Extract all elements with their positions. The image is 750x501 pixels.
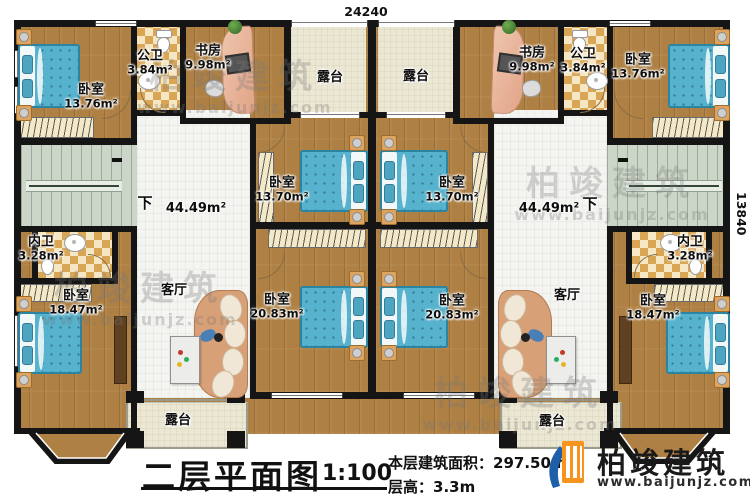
nightstand xyxy=(16,296,32,312)
plan-scale: 1:100 xyxy=(322,461,392,486)
terrace-post xyxy=(499,431,517,448)
stair-rail-left xyxy=(26,180,122,192)
nightstand xyxy=(381,135,397,151)
room-label-bedroom-mr: 卧室13.70m² xyxy=(425,177,478,204)
room-label-bath-public-r: 公卫3.84m² xyxy=(560,48,605,75)
terrace-post xyxy=(600,391,618,403)
terrace-post xyxy=(126,431,144,448)
terrace-sill xyxy=(144,399,227,401)
coffee-table xyxy=(546,336,576,384)
room-label-terrace-top-l: 露台 xyxy=(317,71,343,85)
wall xyxy=(180,20,186,124)
table-decor xyxy=(560,350,565,355)
room-label-living-r: 客厅 xyxy=(554,289,580,303)
room-label-bedroom-bmr: 卧室20.83m² xyxy=(425,295,478,322)
hall-area-label-right: 44.49m² xyxy=(519,202,579,216)
room-label-terrace-bottom-l: 露台 xyxy=(165,414,191,428)
nightstand xyxy=(349,345,365,361)
title-underline xyxy=(141,487,387,490)
logo-icon xyxy=(545,437,591,491)
sink-icon xyxy=(64,234,86,252)
window xyxy=(271,393,343,398)
wall xyxy=(284,20,291,124)
nightstand xyxy=(714,29,730,45)
table-decor xyxy=(554,357,559,362)
nightstand xyxy=(381,209,397,225)
plan-title: 二层平面图 xyxy=(142,450,322,498)
sofa-cushion xyxy=(500,320,522,348)
table-decor xyxy=(178,350,183,355)
nightstand xyxy=(714,372,730,388)
nightstand xyxy=(714,296,730,312)
window xyxy=(291,20,368,27)
table-decor xyxy=(561,362,566,367)
wardrobe xyxy=(114,316,127,384)
plant-icon xyxy=(228,20,242,34)
room-label-study-r: 书房9.98m² xyxy=(509,47,554,74)
logo-website: www.baijunjz.com xyxy=(597,475,750,490)
terrace-post xyxy=(227,431,245,448)
wall xyxy=(626,278,730,284)
window xyxy=(609,21,651,26)
room-label-bath-inner-r: 内卫3.28m² xyxy=(667,236,712,263)
sofa-cushion xyxy=(224,320,246,348)
stair-down-label-right: 下 xyxy=(582,196,597,213)
closet xyxy=(268,229,366,248)
wall xyxy=(250,118,256,399)
room-label-terrace-bottom-r: 露台 xyxy=(539,415,565,429)
hall-area-label-left: 44.49m² xyxy=(166,202,226,216)
wall xyxy=(131,20,137,145)
nightstand xyxy=(16,29,32,45)
stair-down-label-left: 下 xyxy=(137,195,152,212)
room-label-terrace-top-r: 露台 xyxy=(403,70,429,84)
wall xyxy=(14,278,118,284)
bed xyxy=(18,312,82,374)
room-label-bedroom-bl: 卧室18.47m² xyxy=(49,290,102,317)
person-head xyxy=(521,333,530,342)
wall xyxy=(607,20,613,145)
room-label-bath-public-l: 公卫3.84m² xyxy=(127,50,172,77)
window xyxy=(378,20,455,27)
wall xyxy=(488,118,494,399)
wall xyxy=(180,118,290,124)
sink-icon xyxy=(586,72,608,90)
nightstand xyxy=(349,135,365,151)
wall xyxy=(14,138,137,145)
stair-arrow-right xyxy=(618,158,628,162)
room-label-study-l: 书房9.98m² xyxy=(185,45,230,72)
bed xyxy=(300,286,368,348)
wall xyxy=(454,118,564,124)
nightstand xyxy=(349,271,365,287)
dimension-right: 13840 xyxy=(734,192,749,236)
room-label-bedroom-bml: 卧室20.83m² xyxy=(250,294,303,321)
table-decor xyxy=(184,357,189,362)
nightstand xyxy=(16,105,32,121)
closet xyxy=(380,229,478,248)
dimension-top: 24240 xyxy=(344,4,388,19)
floor-plan-page: 卧室13.76m² 公卫3.84m² 书房9.98m² 露台 露台 书房9.98… xyxy=(0,0,750,501)
wall xyxy=(607,138,730,145)
nightstand xyxy=(714,105,730,121)
room-label-bedroom-ml: 卧室13.70m² xyxy=(255,177,308,204)
window xyxy=(300,112,360,118)
plant-icon xyxy=(502,20,516,34)
table-decor xyxy=(177,362,182,367)
floor-height-line: 层高：3.3m xyxy=(388,476,475,497)
wardrobe xyxy=(619,316,632,384)
nightstand xyxy=(16,372,32,388)
bed xyxy=(668,44,730,108)
wall xyxy=(626,232,632,284)
stair-rail-right xyxy=(626,180,722,192)
window xyxy=(403,393,475,398)
room-label-bath-inner-l: 内卫3.28m² xyxy=(18,236,63,263)
room-label-bedroom-tr: 卧室13.76m² xyxy=(611,54,664,81)
wall xyxy=(453,20,460,124)
nightstand xyxy=(381,271,397,287)
window xyxy=(386,112,446,118)
room-label-bedroom-tl: 卧室13.76m² xyxy=(64,84,117,111)
bed xyxy=(300,150,368,212)
wall xyxy=(368,20,376,399)
terrace-top-left xyxy=(291,21,366,114)
room-label-living-l: 客厅 xyxy=(161,284,187,298)
person-head xyxy=(214,333,223,342)
terrace-post xyxy=(126,391,144,403)
stair-arrow-left xyxy=(112,158,122,162)
nightstand xyxy=(349,209,365,225)
nightstand xyxy=(381,345,397,361)
wall xyxy=(112,232,118,284)
terrace-sill xyxy=(517,399,600,401)
terrace-top-right xyxy=(378,21,453,114)
window xyxy=(95,21,137,26)
room-label-bedroom-br: 卧室18.47m² xyxy=(626,295,679,322)
